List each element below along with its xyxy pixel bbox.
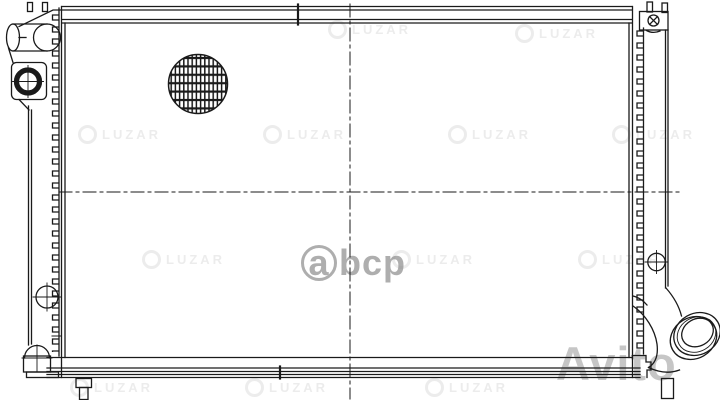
mounting-tab bbox=[43, 3, 48, 12]
right-serrated-strip bbox=[635, 28, 645, 354]
screw-head-icon bbox=[648, 15, 659, 26]
hatched-hole bbox=[169, 55, 228, 114]
right-tank bbox=[633, 2, 720, 399]
mounting-foot-right bbox=[662, 379, 674, 399]
left-tank bbox=[7, 3, 92, 400]
mounting-tab bbox=[28, 3, 33, 12]
side-fitting-boss bbox=[645, 251, 668, 274]
radiator-technical-drawing: LUZAR LUZAR LUZAR LUZAR LUZAR LUZAR LUZA… bbox=[0, 0, 720, 400]
radiator-drawing-svg bbox=[0, 0, 720, 400]
mounting-flange bbox=[12, 63, 47, 111]
mounting-tab bbox=[647, 2, 653, 12]
mounting-foot-left bbox=[76, 379, 92, 400]
